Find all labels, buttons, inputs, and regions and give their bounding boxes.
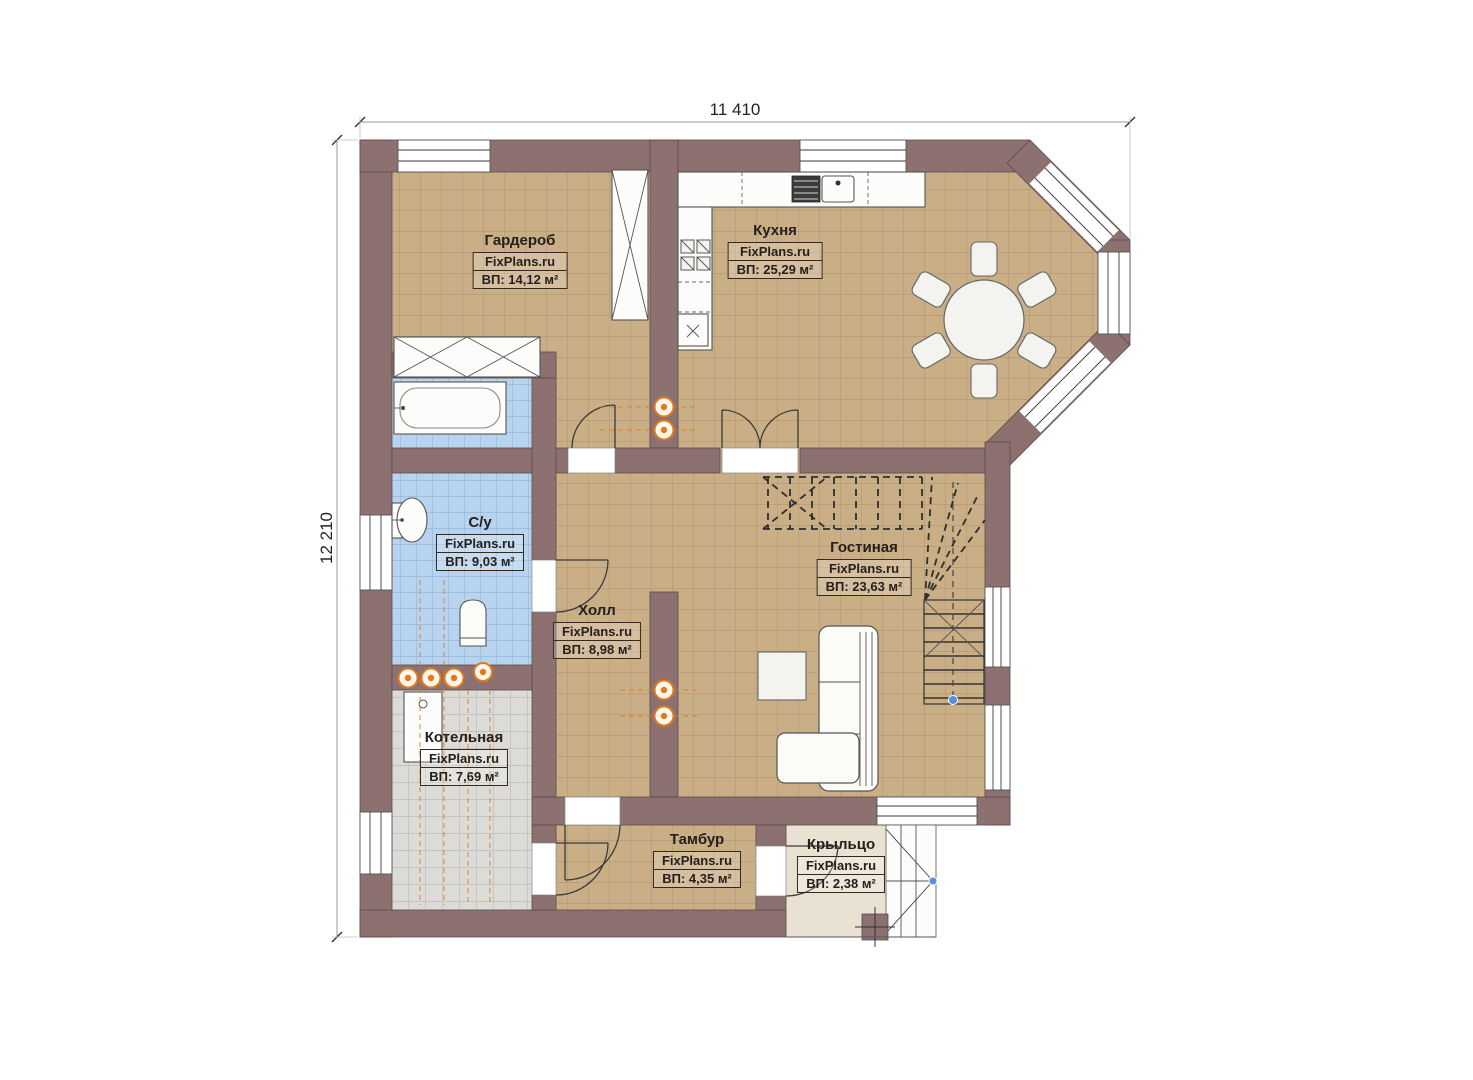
window-living-bottom xyxy=(877,797,977,825)
wall-mid-c xyxy=(800,448,985,473)
toilet xyxy=(460,600,486,646)
window-boiler xyxy=(360,812,392,874)
floor-plan-drawing xyxy=(0,0,1473,1080)
wall-mid-b xyxy=(615,448,720,473)
dining-table xyxy=(944,280,1024,360)
wall-tambour-right-a xyxy=(756,825,786,846)
floor-plan-canvas: 11 410 12 210 Гардероб FixPlans.ru ВП: 1… xyxy=(0,0,1473,1080)
kitchen-sink xyxy=(792,176,854,202)
window-living-right-b xyxy=(985,705,1010,790)
closet-tall xyxy=(612,170,648,320)
stairs-walkline-marker xyxy=(949,696,958,705)
window-living-right-a xyxy=(985,587,1010,667)
wall-boiler-tambour-b xyxy=(532,895,556,910)
bathroom-sink xyxy=(392,498,427,542)
coffee-table xyxy=(758,652,806,700)
appliance xyxy=(678,314,708,346)
wall-tambour-right-b xyxy=(756,896,786,910)
window-bay-right xyxy=(1098,252,1130,334)
wall-bathroom-right-b xyxy=(532,612,556,797)
boiler-unit xyxy=(404,692,442,762)
window-wardrobe xyxy=(398,140,490,172)
wall-bathroom-right-a xyxy=(532,378,556,560)
bathtub xyxy=(394,382,506,434)
wall-boiler-tambour-a xyxy=(532,825,556,843)
window-kitchen xyxy=(800,140,906,172)
porch-walkline-marker xyxy=(929,877,937,885)
wall-bottom-tambour xyxy=(360,910,786,937)
closet-low xyxy=(394,337,540,377)
window-bathroom xyxy=(360,515,392,590)
